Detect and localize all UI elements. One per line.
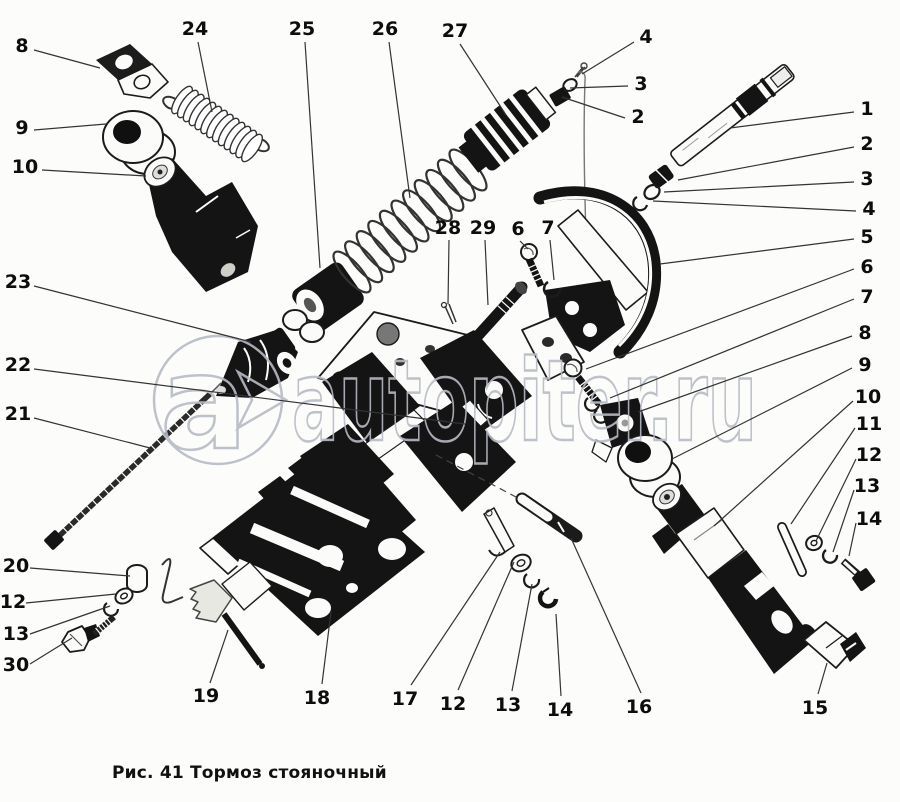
callout-label-27-13: 27 (442, 20, 468, 42)
callout-label-13-8: 13 (3, 623, 29, 645)
callout-label-12-38: 12 (440, 693, 466, 715)
callout-label-21-5: 21 (5, 403, 31, 425)
parts-diagram-figure: a autopiter.ru 8910232221201213302425262… (0, 0, 900, 802)
watermark-logo-letter: a (160, 327, 248, 479)
callout-label-7-20: 7 (541, 217, 554, 239)
callout-label-8-28: 8 (858, 322, 871, 344)
callout-label-9-29: 9 (858, 354, 871, 376)
callout-label-10-2: 10 (12, 156, 38, 178)
callout-label-14-40: 14 (547, 699, 573, 721)
callout-label-4-14: 4 (639, 26, 652, 48)
callout-label-7-27: 7 (860, 286, 873, 308)
callout-label-22-4: 22 (5, 354, 31, 376)
callout-label-11-31: 11 (856, 413, 882, 435)
callout-label-29-18: 29 (470, 217, 496, 239)
callout-label-12-32: 12 (856, 444, 882, 466)
callout-label-26-12: 26 (372, 18, 398, 40)
watermark: a autopiter.ru (154, 327, 757, 479)
callout-label-30-9: 30 (3, 654, 29, 676)
callout-label-19-35: 19 (193, 685, 219, 707)
callout-label-10-30: 10 (855, 386, 881, 408)
callout-label-3-15: 3 (634, 73, 647, 95)
callout-label-20-6: 20 (3, 555, 29, 577)
callout-label-15-42: 15 (802, 697, 828, 719)
callout-label-6-26: 6 (860, 256, 873, 278)
callout-label-25-11: 25 (289, 18, 315, 40)
callout-label-3-23: 3 (860, 168, 873, 190)
callout-label-6-19: 6 (511, 218, 524, 240)
callout-label-23-3: 23 (5, 271, 31, 293)
callout-label-13-39: 13 (495, 694, 521, 716)
watermark-site-text: autopiter.ru (292, 337, 757, 467)
callout-label-2-16: 2 (631, 106, 644, 128)
callout-label-16-41: 16 (626, 696, 652, 718)
callout-label-17-37: 17 (392, 688, 418, 710)
callout-label-2-22: 2 (860, 133, 873, 155)
figure-caption: Рис. 41 Тормоз стояночный (112, 763, 387, 783)
callout-label-28-17: 28 (435, 217, 461, 239)
part-20-bushing (127, 565, 147, 592)
callout-label-13-33: 13 (854, 475, 880, 497)
callout-label-12-7: 12 (0, 591, 26, 613)
callout-label-4-24: 4 (862, 198, 875, 220)
callout-label-1-21: 1 (860, 98, 873, 120)
callout-label-5-25: 5 (860, 226, 873, 248)
callout-label-8-0: 8 (15, 35, 28, 57)
callout-label-9-1: 9 (15, 117, 28, 139)
callout-label-18-36: 18 (304, 687, 330, 709)
callout-label-14-34: 14 (856, 508, 882, 530)
callout-label-24-10: 24 (182, 18, 208, 40)
